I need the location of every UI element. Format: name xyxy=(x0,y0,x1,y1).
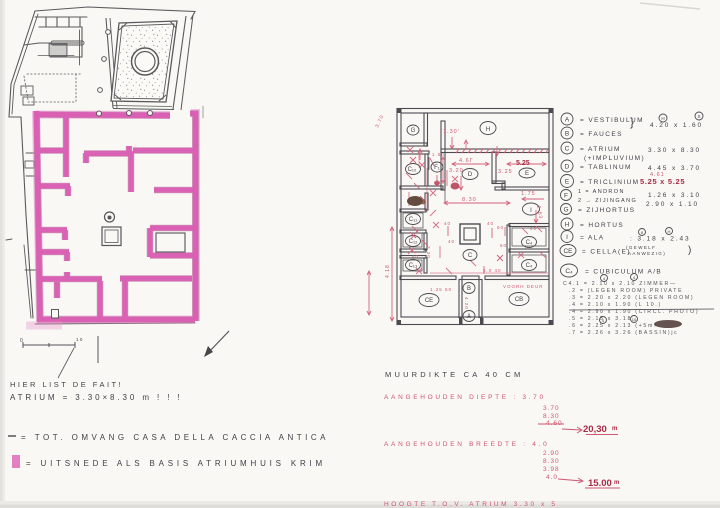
svg-text:5.25 x 5.25: 5.25 x 5.25 xyxy=(640,177,685,186)
svg-text:40: 40 xyxy=(412,254,419,259)
svg-text:8: 8 xyxy=(641,230,644,235)
svg-text:10: 10 xyxy=(632,317,637,322)
svg-text:m: m xyxy=(614,480,619,486)
svg-text:C₄: C₄ xyxy=(526,240,533,246)
svg-text:3.30: 3.30 xyxy=(426,246,431,259)
svg-text:C₁₁: C₁₁ xyxy=(409,217,417,223)
svg-text:5.0 40: 5.0 40 xyxy=(483,268,502,273)
svg-text:D: D xyxy=(565,164,570,171)
svg-text:40: 40 xyxy=(448,239,455,244)
svg-text:.5 = 2.15 x 3.18: .5 = 2.15 x 3.18 xyxy=(569,316,632,322)
svg-text:C₁₃: C₁₃ xyxy=(409,263,418,269)
svg-text:.4 = 2.90 x 1.90 (CIRCL. PHOTO: .4 = 2.90 x 1.90 (CIRCL. PHOTO) xyxy=(569,309,699,315)
svg-text:= CUBICULUM A/B: = CUBICULUM A/B xyxy=(585,269,662,276)
svg-text:S: S xyxy=(697,114,700,119)
svg-text:.7 = 2.26 x 3.26 (BASSIN)jc: .7 = 2.26 x 3.26 (BASSIN)jc xyxy=(569,330,678,336)
svg-text:= VESTIBULUM: = VESTIBULUM xyxy=(580,117,644,124)
svg-text:F₁: F₁ xyxy=(434,165,440,171)
svg-text:ATRIUM = 3.30×8.30 m ! ! !: ATRIUM = 3.30×8.30 m ! ! ! xyxy=(10,393,183,402)
svg-text:H: H xyxy=(565,222,570,229)
svg-text:H: H xyxy=(668,229,671,234)
svg-text:= ALA: = ALA xyxy=(580,235,605,242)
svg-text:1.30': 1.30' xyxy=(443,129,460,135)
svg-text:.3 = 2.20 x 2.20 (LEGEN ROOM): .3 = 2.20 x 2.20 (LEGEN ROOM) xyxy=(569,295,694,301)
svg-text:4.45 x 3.70: 4.45 x 3.70 xyxy=(648,165,701,172)
svg-text:10: 10 xyxy=(76,337,84,342)
svg-text:40: 40 xyxy=(444,221,451,226)
svg-text:1.26 x 3.10: 1.26 x 3.10 xyxy=(648,192,701,199)
svg-text:AANGEHOUDEN BREEDTE : 4.0: AANGEHOUDEN BREEDTE : 4.0 xyxy=(384,441,549,448)
svg-text:1 = ANDRON: 1 = ANDRON xyxy=(578,189,625,195)
svg-text:8.30: 8.30 xyxy=(543,413,560,420)
svg-text:G: G xyxy=(563,207,568,214)
svg-text:= HORTUS: = HORTUS xyxy=(580,222,624,229)
svg-text:.4 = 2.10 x 1.90 (L 10.): .4 = 2.10 x 1.90 (L 10.) xyxy=(569,302,662,308)
svg-text:2.90 x 1.10: 2.90 x 1.10 xyxy=(646,201,699,208)
svg-text:= TRICLINIUM: = TRICLINIUM xyxy=(580,179,639,186)
svg-text:D: D xyxy=(468,172,473,178)
svg-text:): ) xyxy=(688,245,691,256)
svg-text:CE: CE xyxy=(425,298,433,304)
svg-text:20,30: 20,30 xyxy=(583,424,607,435)
svg-text:C: C xyxy=(468,253,473,259)
svg-text:3.70: 3.70 xyxy=(374,114,385,129)
svg-text:CB: CB xyxy=(515,297,523,303)
svg-text:= UITSNEDE ALS BASIS ATRIUMHUI: = UITSNEDE ALS BASIS ATRIUMHUIS KRIM xyxy=(26,459,326,468)
svg-text:E: E xyxy=(525,171,529,177)
svg-text:A: A xyxy=(467,314,471,320)
svg-text:3.25: 3.25 xyxy=(498,169,513,175)
svg-text:MUURDIKTE CA 40 CM: MUURDIKTE CA 40 CM xyxy=(385,370,523,379)
svg-text:0: 0 xyxy=(20,338,24,344)
svg-text:3.20: 3.20 xyxy=(449,168,464,174)
svg-text:C: C xyxy=(565,146,570,153)
svg-text:.2 = (LEGEN ROOM) PRIVATE: .2 = (LEGEN ROOM) PRIVATE xyxy=(569,288,683,294)
svg-text:40: 40 xyxy=(530,226,537,231)
svg-text:C₁₂: C₁₂ xyxy=(409,239,418,245)
svg-text:8.30: 8.30 xyxy=(543,458,560,465)
svg-text:B: B xyxy=(467,286,471,292)
svg-text:H: H xyxy=(661,116,664,121)
svg-text:I: I xyxy=(530,208,532,214)
svg-text:3.98: 3.98 xyxy=(543,466,560,473)
svg-text:HOOGTE T.O.V. ATRIUM 3.30 x 5: HOOGTE T.O.V. ATRIUM 3.30 x 5 xyxy=(384,501,558,508)
svg-text:: 3.18 x 2.43: : 3.18 x 2.43 xyxy=(630,236,690,243)
svg-text:C₄: C₄ xyxy=(526,263,533,269)
svg-text:= TABLINUM: = TABLINUM xyxy=(580,164,632,171)
svg-text:= ZIJHORTUS: = ZIJHORTUS xyxy=(578,207,635,214)
svg-text:4.0: 4.0 xyxy=(546,474,558,481)
svg-text:8.30: 8.30 xyxy=(462,197,477,203)
svg-text:F: F xyxy=(564,193,568,200)
svg-text:1.25 50: 1.25 50 xyxy=(430,287,452,292)
svg-text:VOORH DEUR: VOORH DEUR xyxy=(503,284,544,289)
svg-text:C₄: C₄ xyxy=(565,268,573,275)
svg-text:= ATRIUM: = ATRIUM xyxy=(580,146,621,153)
svg-text:= FAUCES: = FAUCES xyxy=(580,131,623,138)
svg-text:C4.1 = 2.10 x 2.10 ZIMMER—: C4.1 = 2.10 x 2.10 ZIMMER— xyxy=(563,281,677,287)
svg-text:4.20 x 1.60: 4.20 x 1.60 xyxy=(650,122,703,129)
svg-text:3.30 x 8.30: 3.30 x 8.30 xyxy=(648,147,701,154)
svg-text:CE: CE xyxy=(563,248,573,255)
svg-text:B: B xyxy=(565,131,569,138)
svg-text:E: E xyxy=(565,179,570,186)
svg-text:}: } xyxy=(630,115,634,129)
svg-text:1.75: 1.75 xyxy=(521,191,536,197)
svg-text:15.00: 15.00 xyxy=(588,478,612,489)
svg-text:4: 4 xyxy=(633,275,636,280)
svg-text:4.20: 4.20 xyxy=(464,297,469,310)
svg-text:40: 40 xyxy=(487,221,494,226)
svg-text:4.6Γ: 4.6Γ xyxy=(459,158,474,164)
svg-text:.6 = 2.25 x 2.13 (+5m+: .6 = 2.25 x 2.13 (+5m+ xyxy=(569,323,659,329)
svg-text:1.50: 1.50 xyxy=(432,152,445,157)
svg-text:= CELLA(E): = CELLA(E) xyxy=(582,249,631,256)
svg-text:G: G xyxy=(411,128,416,134)
svg-text:2.90: 2.90 xyxy=(543,450,560,457)
svg-text:A: A xyxy=(565,117,570,124)
svg-text:60: 60 xyxy=(497,225,504,230)
svg-text:= TOT. OMVANG CASA DELLA CACCI: = TOT. OMVANG CASA DELLA CACCIA ANTICA xyxy=(21,433,329,442)
svg-text:3.70: 3.70 xyxy=(543,405,560,412)
svg-text:4.60: 4.60 xyxy=(546,420,563,427)
svg-text:60: 60 xyxy=(500,243,507,248)
svg-text:AANWEZIG): AANWEZIG) xyxy=(628,251,666,256)
svg-text:AANGEHOUDEN DIEPTE : 3.70: AANGEHOUDEN DIEPTE : 3.70 xyxy=(384,394,546,401)
svg-text:HIER LIST DE FAIT!: HIER LIST DE FAIT! xyxy=(10,380,123,389)
svg-text:4.18: 4.18 xyxy=(385,264,391,278)
svg-text:C₁₀: C₁₀ xyxy=(408,167,417,173)
svg-text:I: I xyxy=(566,234,568,241)
svg-text:2 → ZIJINGANG: 2 → ZIJINGANG xyxy=(578,198,637,204)
svg-text:m: m xyxy=(612,426,617,432)
svg-text:5.25: 5.25 xyxy=(516,160,530,167)
svg-text:(+IMPLUVIUM): (+IMPLUVIUM) xyxy=(584,155,645,162)
svg-text:H: H xyxy=(486,127,490,133)
